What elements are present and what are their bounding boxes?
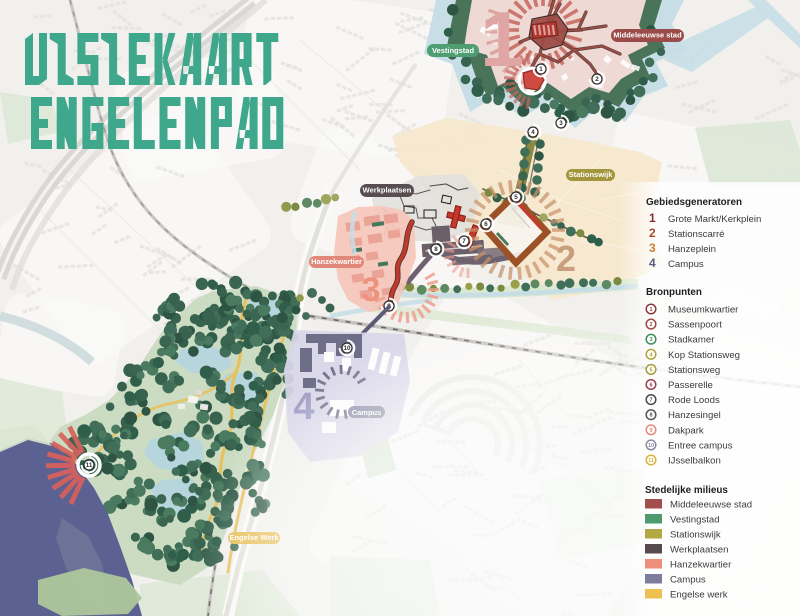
svg-text:Passerelle: Passerelle xyxy=(668,380,713,391)
svg-text:1: 1 xyxy=(649,211,656,225)
svg-text:9: 9 xyxy=(649,428,652,434)
svg-text:Museumkwartier: Museumkwartier xyxy=(668,305,739,316)
svg-text:11: 11 xyxy=(648,458,654,464)
svg-text:Stadkamer: Stadkamer xyxy=(668,335,715,346)
svg-text:1: 1 xyxy=(539,66,543,73)
svg-text:Kop Stationsweg: Kop Stationsweg xyxy=(668,350,740,361)
svg-text:Hanzekwartier: Hanzekwartier xyxy=(670,560,732,571)
svg-text:Entree campus: Entree campus xyxy=(668,440,733,451)
svg-text:3: 3 xyxy=(559,120,563,127)
svg-text:7: 7 xyxy=(462,238,466,245)
svg-text:2: 2 xyxy=(556,238,576,279)
svg-text:8: 8 xyxy=(434,246,438,253)
svg-text:Hanzekwartier: Hanzekwartier xyxy=(311,257,362,266)
svg-text:6: 6 xyxy=(649,383,652,389)
svg-text:Sassenpoort: Sassenpoort xyxy=(668,320,722,331)
svg-text:Campus: Campus xyxy=(670,575,706,586)
svg-text:Hanzeplein: Hanzeplein xyxy=(668,244,716,255)
svg-text:Stedelijke milieus: Stedelijke milieus xyxy=(645,485,728,496)
svg-text:11: 11 xyxy=(86,462,93,469)
svg-text:Stationswijk: Stationswijk xyxy=(670,530,721,541)
svg-text:5: 5 xyxy=(514,194,518,201)
svg-text:Werkplaatsen: Werkplaatsen xyxy=(670,545,728,556)
svg-text:3: 3 xyxy=(649,241,656,255)
svg-text:3: 3 xyxy=(649,337,652,343)
svg-text:IJsselbalkon: IJsselbalkon xyxy=(668,456,721,467)
svg-text:Dakpark: Dakpark xyxy=(668,425,704,436)
svg-text:Vestingstad: Vestingstad xyxy=(670,515,720,526)
svg-text:Hanzesingel: Hanzesingel xyxy=(668,410,721,421)
svg-text:Stationswijk: Stationswijk xyxy=(569,170,614,179)
svg-text:Bronpunten: Bronpunten xyxy=(646,287,702,298)
svg-text:2: 2 xyxy=(649,322,652,328)
svg-text:Middeleeuwse stad: Middeleeuwse stad xyxy=(613,31,682,40)
svg-text:2: 2 xyxy=(649,226,656,240)
svg-text:Vestingstad: Vestingstad xyxy=(432,46,475,55)
svg-text:6: 6 xyxy=(484,221,488,228)
svg-text:Gebiedsgeneratoren: Gebiedsgeneratoren xyxy=(646,197,742,208)
svg-text:Campus: Campus xyxy=(668,259,704,270)
svg-text:2: 2 xyxy=(595,76,599,83)
svg-text:4: 4 xyxy=(531,129,535,136)
svg-text:5: 5 xyxy=(649,367,652,373)
svg-text:Stationsweg: Stationsweg xyxy=(668,365,720,376)
svg-text:1: 1 xyxy=(480,0,523,83)
svg-text:10: 10 xyxy=(648,443,654,449)
svg-text:10: 10 xyxy=(344,345,351,352)
svg-text:Rode Loods: Rode Loods xyxy=(668,395,720,406)
svg-text:3: 3 xyxy=(362,271,381,309)
svg-text:8: 8 xyxy=(649,413,652,419)
svg-text:Engelse werk: Engelse werk xyxy=(670,590,728,601)
svg-text:4: 4 xyxy=(649,256,656,270)
svg-text:7: 7 xyxy=(649,398,652,404)
svg-text:Grote Markt/Kerkplein: Grote Markt/Kerkplein xyxy=(668,214,761,225)
svg-text:Middeleeuwse stad: Middeleeuwse stad xyxy=(670,500,752,511)
svg-text:Werkplaatsen: Werkplaatsen xyxy=(363,186,412,195)
svg-text:Stationscarré: Stationscarré xyxy=(668,229,725,240)
svg-text:1: 1 xyxy=(649,307,652,313)
